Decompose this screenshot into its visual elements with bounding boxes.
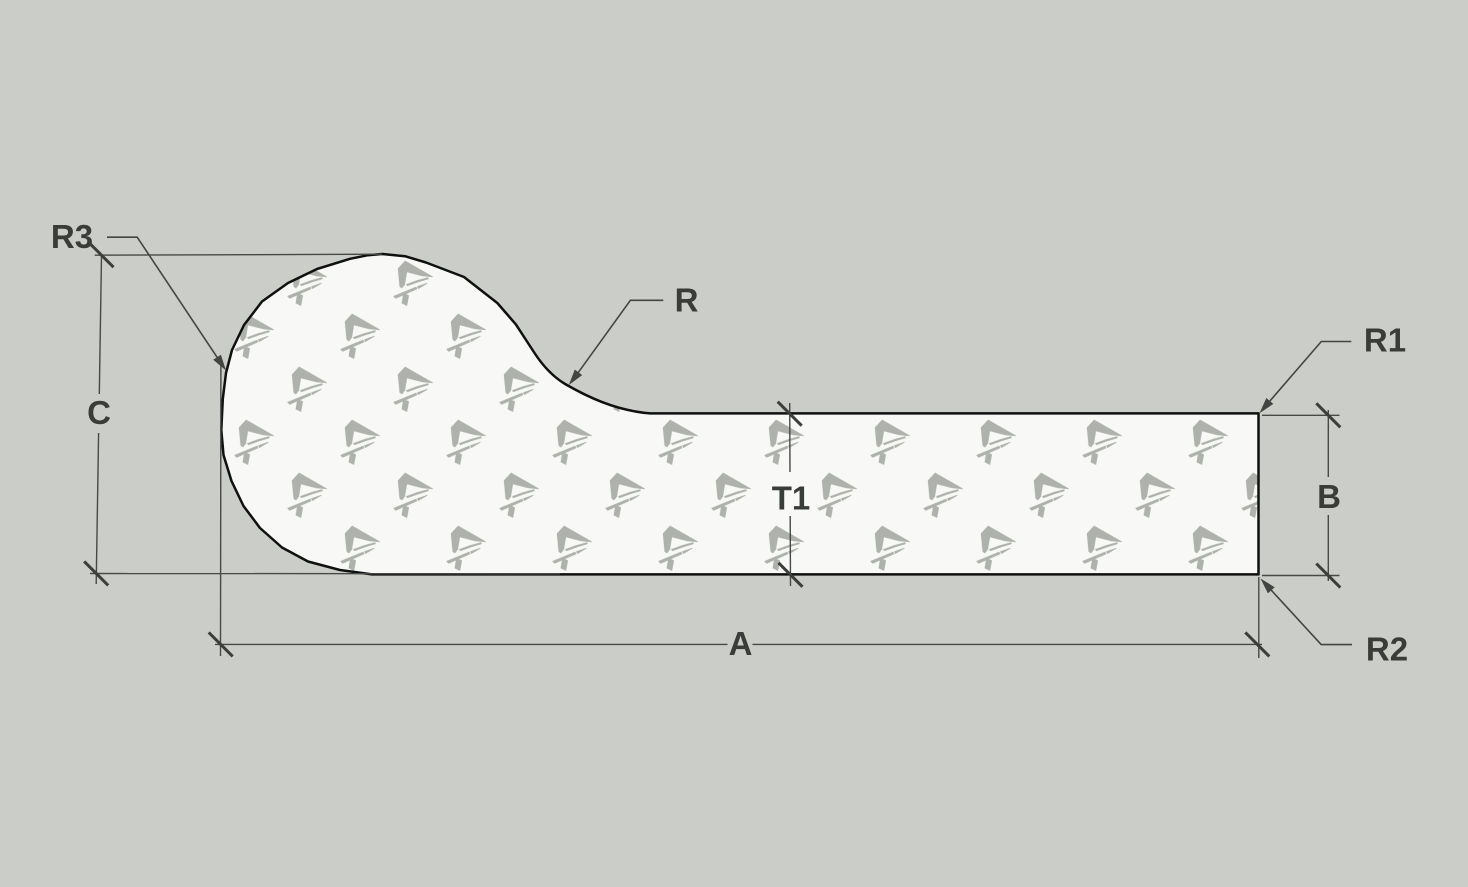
- svg-text:R3: R3: [51, 218, 93, 255]
- svg-text:B: B: [1317, 478, 1341, 515]
- svg-text:R: R: [675, 282, 699, 319]
- svg-text:T1: T1: [772, 480, 811, 517]
- svg-text:A: A: [729, 625, 753, 662]
- svg-text:R2: R2: [1366, 631, 1408, 668]
- svg-text:R1: R1: [1364, 322, 1406, 359]
- svg-text:C: C: [87, 394, 111, 431]
